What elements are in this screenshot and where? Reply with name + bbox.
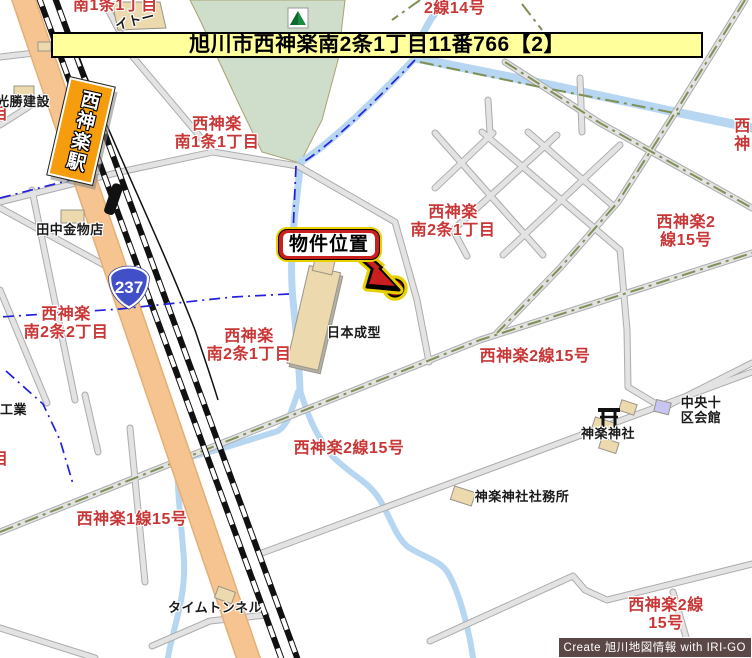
callout-label: 物件位置 (283, 233, 375, 256)
area-label: 西神楽2線15号 (294, 440, 405, 458)
callout-border-inner: 物件位置 (279, 230, 379, 259)
area-label: 西神楽2線15号 (653, 214, 719, 250)
area-label: 西神楽 南2条2丁目 (24, 306, 109, 342)
area-label: 西神楽 南2条1丁目 (411, 204, 496, 240)
place-label: 日本成型 (327, 326, 381, 341)
building-jimusho (450, 486, 475, 506)
callout-border: 物件位置 (278, 229, 380, 260)
area-label: 西神 (733, 118, 752, 154)
place-label: 工業 (0, 403, 27, 418)
place-label: タイムトンネル (168, 601, 262, 616)
area-label: 西神楽1線15号 (77, 511, 188, 529)
map-canvas[interactable]: 237 南1条1丁目 2線14号 西神楽 南1条1丁目 西神楽 南2条1丁目 西… (0, 0, 752, 658)
park-icon (288, 8, 308, 28)
area-label: 西神楽 南2条1丁目 (207, 328, 292, 364)
place-label: 光勝建設 (0, 95, 50, 110)
map-credit: Create 旭川地図情報 with IRI-GO (558, 637, 752, 658)
place-label: 田中金物店 (36, 223, 104, 238)
property-location-callout[interactable]: 物件位置 (276, 227, 382, 262)
place-label: 神楽神社社務所 (475, 490, 570, 505)
area-label: 西神楽 南1条1丁目 (175, 116, 260, 152)
area-label: 2線14号 (424, 0, 485, 18)
place-label: 神楽神社 (581, 427, 635, 442)
area-label: 西神楽2線15号 (623, 597, 709, 633)
address-banner: 旭川市西神楽南2条1丁目11番766【2】 (51, 32, 703, 58)
area-label: 西神楽2線15号 (480, 348, 591, 366)
stream-southeast (300, 390, 473, 658)
place-label: 中央十区会館 (676, 396, 727, 425)
building-shrine-2 (619, 400, 638, 415)
area-label: 目 (0, 451, 9, 469)
route-number: 237 (115, 278, 143, 297)
